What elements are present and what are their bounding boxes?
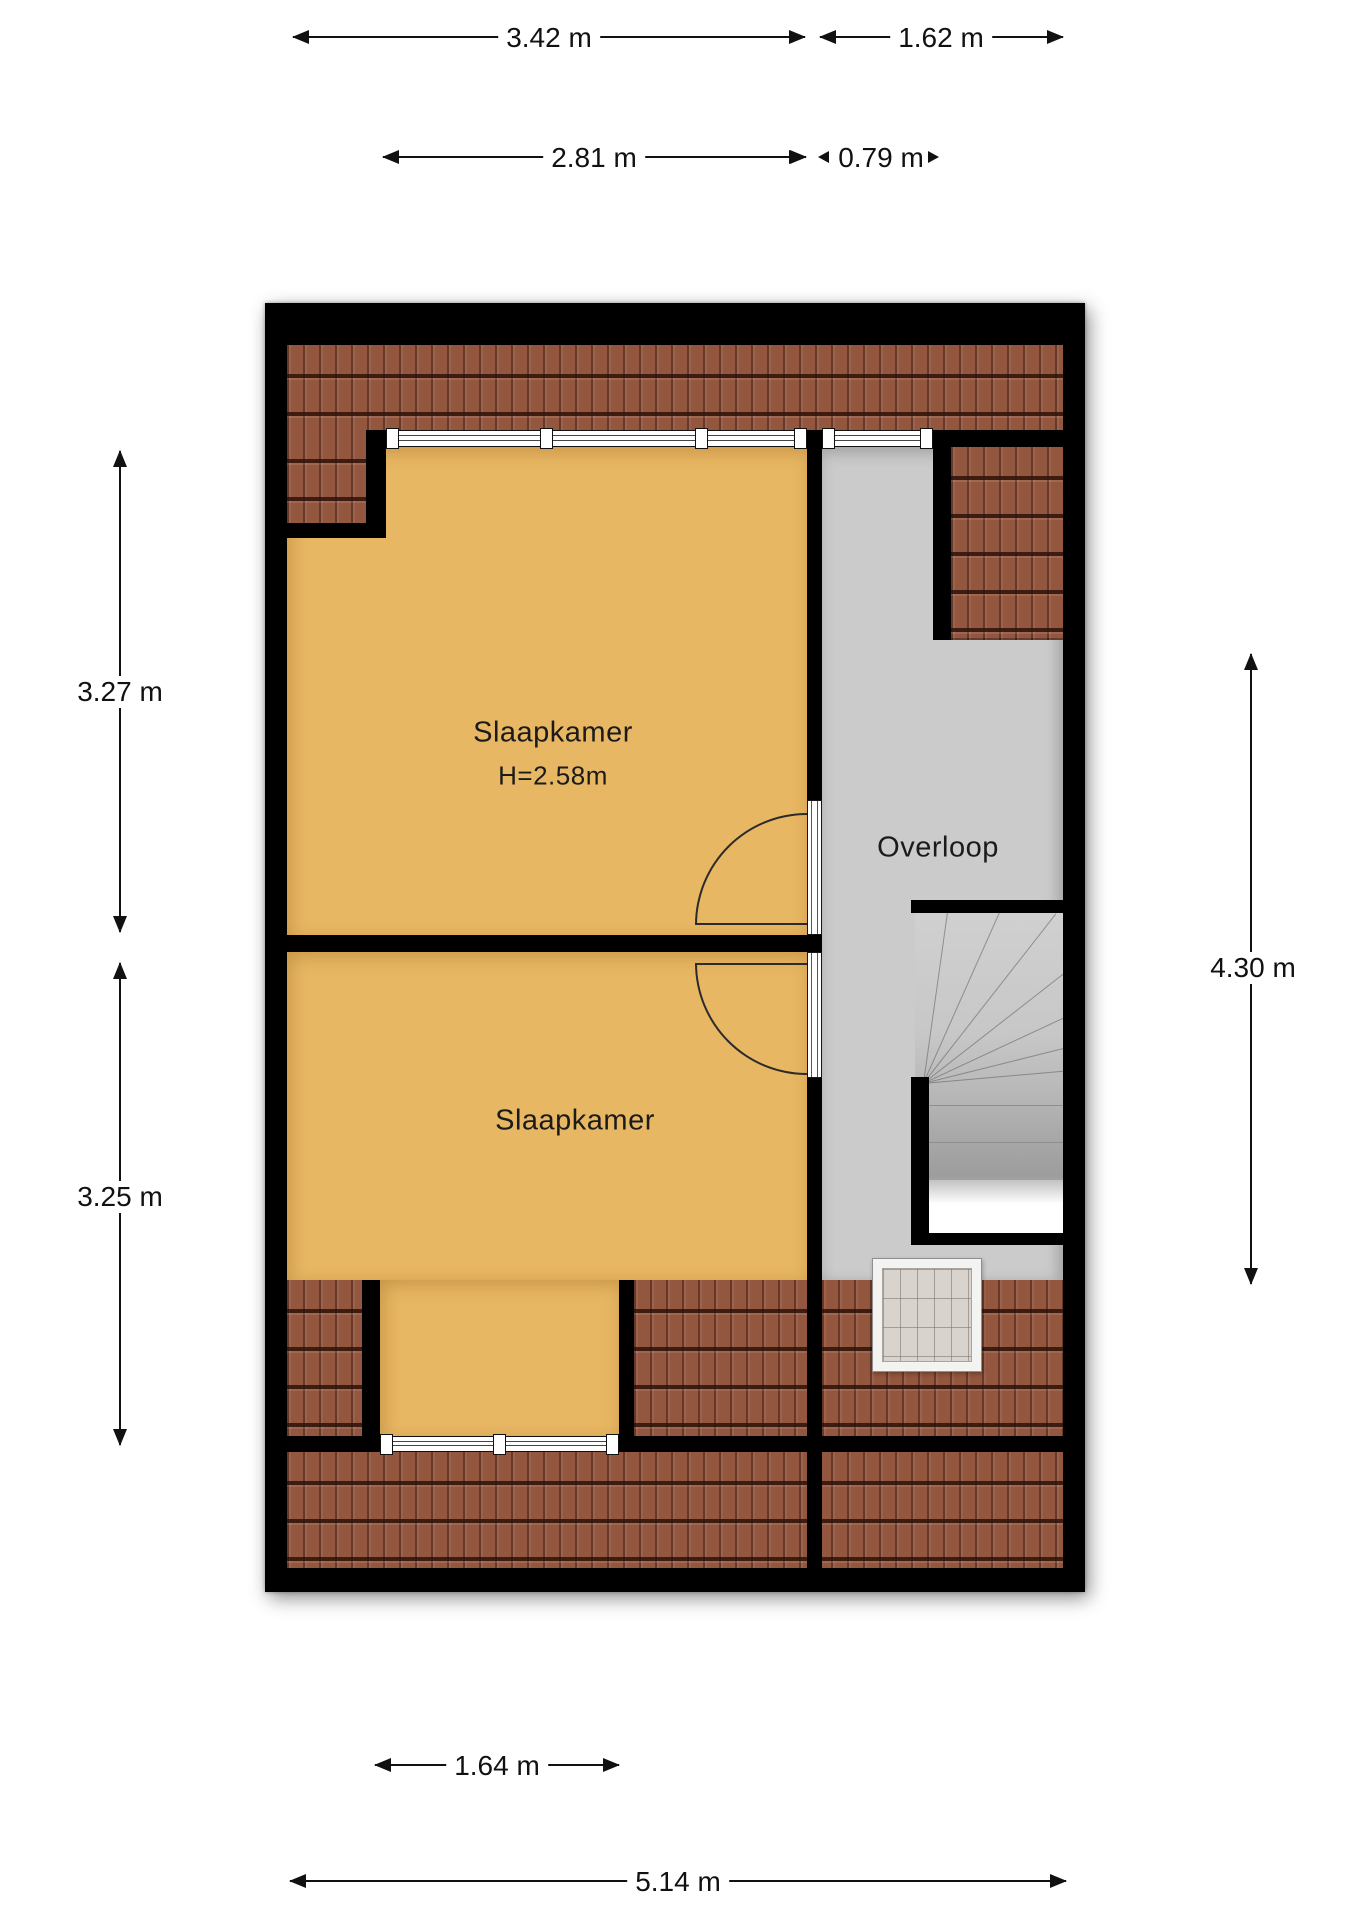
wall-top-right-patch-top — [933, 430, 1063, 447]
roof-tiles-bottom-left-patch — [287, 1280, 362, 1436]
bedroom-bottom-label: Slaapkamer — [495, 1105, 655, 1138]
roof-tiles-bottom-middle-patch — [634, 1280, 807, 1436]
bedroom-bottom-floor-lower — [380, 1280, 619, 1436]
roof-tiles-top-strip — [287, 345, 1063, 430]
stair-winder-line — [923, 913, 954, 1083]
window-post — [493, 1434, 506, 1455]
stair-winder-line — [923, 913, 1011, 1083]
skylight-glass — [882, 1268, 972, 1362]
roof-tiles-top-right-patch — [951, 447, 1063, 640]
window-post — [695, 428, 708, 449]
window-post — [380, 1434, 393, 1455]
wall-middle — [287, 935, 822, 952]
dim-bottom-window: 1.64 m — [446, 1750, 548, 1782]
wall-divider-upper — [807, 447, 822, 800]
dim-top-bedroom: 3.42 m — [498, 22, 600, 54]
window-post — [822, 428, 835, 449]
roof-tiles-top-left-patch — [287, 430, 366, 523]
window-post — [386, 428, 399, 449]
dim-left-lower: 3.25 m — [69, 1181, 171, 1213]
door-frame-bedroom-top — [807, 800, 822, 935]
window-landing — [822, 430, 933, 447]
window-post — [606, 1434, 619, 1455]
wall-bottom-band-left — [287, 1436, 380, 1452]
window-post — [540, 428, 553, 449]
wall-stair-top — [911, 900, 1063, 913]
wall-divider-lower — [807, 1078, 822, 1568]
dim-top-landing: 1.62 m — [890, 22, 992, 54]
dim-arrow-left — [818, 151, 829, 163]
roof-tiles-bottom-strip — [287, 1452, 1063, 1568]
landing-label: Overloop — [877, 832, 999, 865]
wall-top-right-patch-left — [933, 447, 951, 640]
door-leaf-bedroom-bottom — [695, 963, 807, 965]
staircase — [915, 913, 1063, 1233]
door-leaf-bedroom-top — [695, 923, 807, 925]
dim-arrow-right — [928, 151, 939, 163]
wall-stair-left — [911, 1077, 929, 1245]
stair-tread-line — [915, 1142, 1063, 1143]
window-bedroom-top — [386, 430, 807, 447]
dim-line-window-landing — [665, 156, 806, 158]
window-post — [794, 428, 807, 449]
bedroom-top-label: Slaapkamer — [473, 717, 633, 750]
dim-total-width: 5.14 m — [627, 1866, 729, 1898]
dim-window-bedroom: 2.81 m — [543, 142, 645, 174]
wall-top-left-patch-right — [366, 430, 386, 538]
dim-window-landing: 0.79 m — [830, 142, 932, 174]
wall-bottom-middle-patch-left — [619, 1280, 634, 1452]
window-post — [920, 428, 933, 449]
skylight — [872, 1258, 982, 1372]
floor-plan-canvas: Slaapkamer H=2.58m Overloop Slaapkamer 3… — [0, 0, 1358, 1920]
wall-stair-bottom — [911, 1233, 1063, 1245]
stair-tread-line — [915, 1105, 1063, 1106]
stair-opening — [915, 1180, 1063, 1233]
wall-top-left-patch-bottom — [287, 523, 386, 538]
door-frame-bedroom-bottom — [807, 952, 822, 1078]
stair-winder-line — [923, 951, 1063, 1084]
dim-left-upper: 3.27 m — [69, 676, 171, 708]
dim-right: 4.30 m — [1202, 952, 1304, 984]
wall-bottom-band-right — [619, 1436, 1063, 1452]
bedroom-top-height-label: H=2.58m — [498, 761, 608, 792]
wall-bottom-left-patch-right — [362, 1280, 380, 1452]
